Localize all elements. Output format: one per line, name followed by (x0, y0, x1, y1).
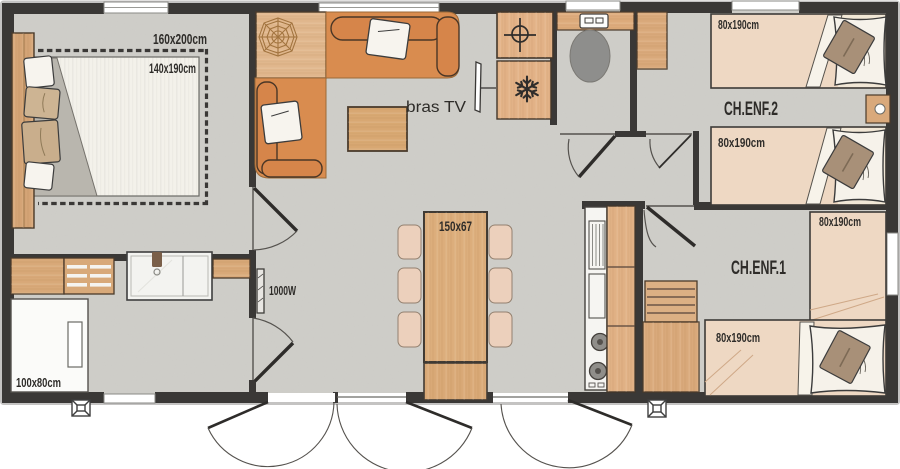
svg-text:160x200cm: 160x200cm (153, 32, 207, 48)
svg-text:100x80cm: 100x80cm (16, 375, 61, 390)
svg-text:bras TV: bras TV (406, 99, 467, 116)
svg-text:150x67: 150x67 (439, 219, 472, 234)
svg-text:80x190cm: 80x190cm (819, 214, 861, 229)
svg-text:CH.ENF.2: CH.ENF.2 (724, 99, 778, 120)
svg-text:80x190cm: 80x190cm (718, 135, 765, 150)
svg-text:CH.ENF.1: CH.ENF.1 (731, 258, 786, 279)
svg-text:140x190cm: 140x190cm (149, 61, 196, 76)
svg-text:80x190cm: 80x190cm (716, 330, 760, 345)
svg-text:1000W: 1000W (269, 284, 296, 298)
svg-text:80x190cm: 80x190cm (718, 17, 759, 32)
